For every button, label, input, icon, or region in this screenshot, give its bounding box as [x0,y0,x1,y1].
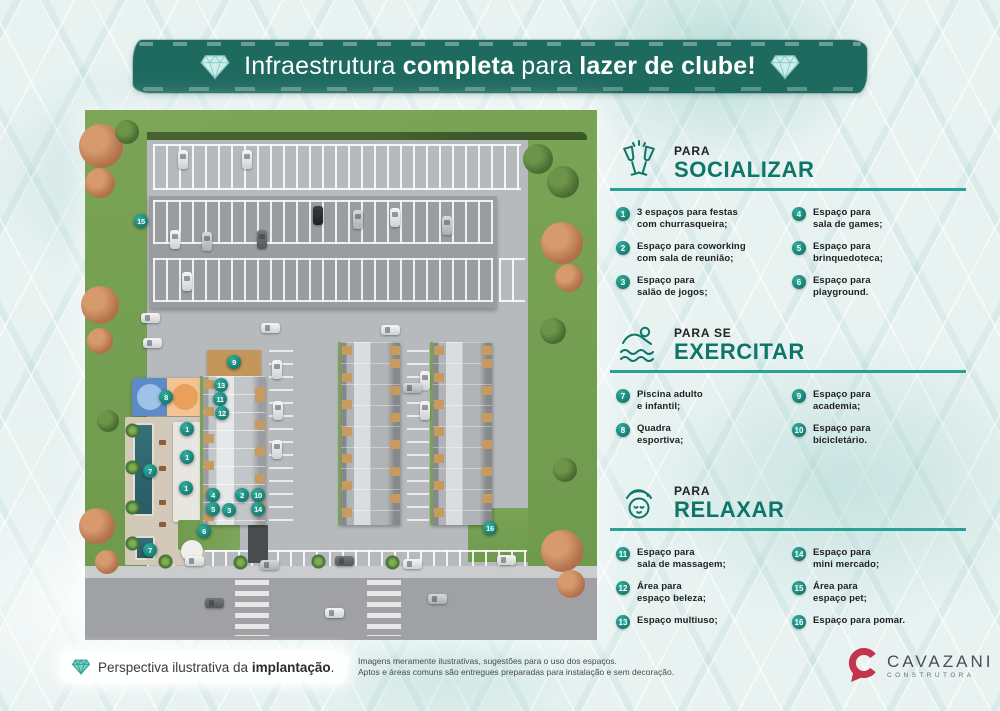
car [273,401,283,420]
item-label: Área paraespaço beleza; [637,581,706,604]
car [260,560,279,570]
tree [97,410,119,432]
car [170,230,180,249]
tree [547,166,579,198]
car [353,210,363,229]
palm-tree [311,554,326,569]
tree [553,458,577,482]
tree [81,286,119,324]
utility-shed [248,525,268,563]
site-plan: 15913111281117745321014616 [85,110,597,640]
item-number-badge: 2 [616,241,630,255]
residential-row [430,342,492,525]
map-marker-15: 15 [134,214,148,228]
tree [541,222,583,264]
section-title: RELAXAR [674,498,785,521]
item-label: Espaço parasala de games; [813,207,883,230]
crosswalk [367,580,401,636]
item-label: 3 espaços para festascom churrasqueira; [637,207,738,230]
item-number-badge: 10 [792,423,806,437]
map-marker-8: 8 [159,390,173,404]
car [272,440,282,459]
item-label: Espaço parasalão de jogos; [637,275,708,298]
car [257,230,267,249]
section-header: PARA SOCIALIZAR [610,136,966,188]
items-column-left: 7Piscina adultoe infantil;8Quadraesporti… [616,389,782,446]
swimmer-icon [616,320,662,368]
section-title: EXERCITAR [674,340,805,363]
item-label: Área paraespaço pet; [813,581,867,604]
item-label: Espaço parabicicletário. [813,423,871,446]
car [325,608,344,618]
car [205,598,224,608]
awning [342,346,352,521]
car [497,555,516,565]
item-label: Espaço parabrinquedoteca; [813,241,883,264]
map-marker-9: 9 [227,355,241,369]
car [185,556,204,566]
deck-furniture [159,466,166,471]
item-number-badge: 12 [616,581,630,595]
item-label: Piscina adultoe infantil; [637,389,703,412]
map-marker-5: 5 [206,502,220,516]
tree [115,120,139,144]
items-column-right: 4Espaço parasala de games;5Espaço parabr… [792,207,962,298]
items-column-right: 9Espaço paraacademia;10Espaço parabicicl… [792,389,962,446]
section-divider [610,370,966,373]
car [143,338,162,348]
item-number-badge: 9 [792,389,806,403]
footer-caption: Perspectiva ilustrativa da implantação. [60,650,348,684]
amenity-item-16: 16Espaço para pomar. [792,615,962,629]
item-number-badge: 8 [616,423,630,437]
diamond-icon [200,54,230,80]
item-label: Quadraesportiva; [637,423,683,446]
amenity-item-3: 3Espaço parasalão de jogos; [616,275,782,298]
map-marker-16: 16 [483,521,497,535]
section-header: PARA SE EXERCITAR [610,318,966,370]
car [428,594,447,604]
footer-caption-text: Perspectiva ilustrativa da implantação. [98,660,334,675]
item-number-badge: 7 [616,389,630,403]
map-marker-11: 11 [213,392,227,406]
logo-name: CAVAZANI [887,653,994,671]
amenity-item-8: 8Quadraesportiva; [616,423,782,446]
section-title: SOCIALIZAR [674,158,814,181]
item-label: Espaço multiuso; [637,615,718,627]
map-marker-10: 10 [251,488,265,502]
map-marker-3: 3 [222,503,236,517]
map-marker-7: 7 [143,464,157,478]
parking-stalls [153,258,493,302]
map-marker-1: 1 [180,450,194,464]
item-label: Espaço para pomar. [813,615,905,627]
section-kicker: PARA [674,144,814,158]
parking-stalls [499,258,525,302]
item-number-badge: 5 [792,241,806,255]
section-relaxar: PARA RELAXAR 11Espaço parasala de massag… [610,476,966,629]
map-marker-2: 2 [235,488,249,502]
car [182,272,192,291]
awning [390,346,400,521]
tree [555,264,583,292]
tree [557,570,585,598]
disclaimer-line: Imagens meramente ilustrativas, sugestõe… [358,656,688,667]
car [141,313,160,323]
disclaimer-line: Aptos e áreas comuns são entregues prepa… [358,667,688,678]
item-number-badge: 15 [792,581,806,595]
item-label: Espaço paraacademia; [813,389,871,412]
diamond-icon [72,659,90,675]
amenity-item-11: 11Espaço parasala de massagem; [616,547,782,570]
logo-subtitle: CONSTRUTORA [887,672,994,679]
tree [85,168,115,198]
palm-tree [125,500,140,515]
map-marker-7: 7 [143,543,157,557]
car [335,556,354,566]
amenity-item-6: 6Espaço paraplayground. [792,275,962,298]
palm-tree [233,555,248,570]
item-number-badge: 13 [616,615,630,629]
amenity-item-12: 12Área paraespaço beleza; [616,581,782,604]
map-marker-13: 13 [214,378,228,392]
car [272,360,282,379]
section-kicker: PARA [674,484,785,498]
crosswalk [235,580,269,636]
deck-furniture [159,500,166,505]
tree [541,530,583,572]
amenity-sections: PARA SOCIALIZAR 13 espaços para festasco… [610,0,966,711]
amenity-item-15: 15Área paraespaço pet; [792,581,962,604]
palm-tree [385,555,400,570]
deck-furniture [159,522,166,527]
car [403,559,422,569]
car [313,206,323,225]
amenity-item-1: 13 espaços para festascom churrasqueira; [616,207,782,230]
item-label: Espaço parasala de massagem; [637,547,726,570]
cavazani-c-mark-icon [848,648,880,684]
car [178,150,188,169]
amenity-item-9: 9Espaço paraacademia; [792,389,962,412]
map-marker-1: 1 [179,481,193,495]
item-label: Espaço paraplayground. [813,275,871,298]
party-pavilions [173,422,203,522]
car [420,401,430,420]
section-exercitar: PARA SE EXERCITAR 7Piscina adultoe infan… [610,318,966,446]
car [242,150,252,169]
map-marker-12: 12 [215,406,229,420]
item-label: Espaço paramini mercado; [813,547,879,570]
cavazani-logo: CAVAZANI CONSTRUTORA [848,648,994,684]
parking-stalls [153,144,521,190]
tree [79,508,115,544]
amenity-item-4: 4Espaço parasala de games; [792,207,962,230]
item-number-badge: 11 [616,547,630,561]
section-socializar: PARA SOCIALIZAR 13 espaços para festasco… [610,136,966,298]
map-marker-14: 14 [251,502,265,516]
item-number-badge: 1 [616,207,630,221]
deck-furniture [159,440,166,445]
section-header: PARA RELAXAR [610,476,966,528]
tree [523,144,553,174]
car [381,325,400,335]
car [403,383,422,393]
amenity-item-5: 5Espaço parabrinquedoteca; [792,241,962,264]
palm-tree [125,423,140,438]
item-number-badge: 4 [792,207,806,221]
amenity-item-7: 7Piscina adultoe infantil; [616,389,782,412]
items-column-right: 14Espaço paramini mercado;15Área paraesp… [792,547,962,629]
palm-tree [125,460,140,475]
items-column-left: 11Espaço parasala de massagem;12Área par… [616,547,782,629]
amenity-item-10: 10Espaço parabicicletário. [792,423,962,446]
section-divider [610,188,966,191]
map-marker-4: 4 [206,488,220,502]
item-label: Espaço para coworkingcom sala de reunião… [637,241,746,264]
car [202,232,212,251]
amenity-item-2: 2Espaço para coworkingcom sala de reuniã… [616,241,782,264]
amenity-item-13: 13Espaço multiuso; [616,615,782,629]
tree [95,550,119,574]
car [390,208,400,227]
map-marker-6: 6 [197,524,211,538]
tree [540,318,566,344]
car [261,323,280,333]
spa-face-icon [616,478,662,526]
residential-row [338,342,400,525]
item-number-badge: 16 [792,615,806,629]
section-kicker: PARA SE [674,326,805,340]
palm-tree [125,536,140,551]
item-number-badge: 6 [792,275,806,289]
item-number-badge: 14 [792,547,806,561]
awning [482,346,492,521]
awning [434,346,444,521]
car [442,216,452,235]
disclaimer: Imagens meramente ilustrativas, sugestõe… [358,656,688,678]
item-number-badge: 3 [616,275,630,289]
right-lawn [526,140,597,572]
items-column-left: 13 espaços para festascom churrasqueira;… [616,207,782,298]
palm-tree [158,554,173,569]
section-divider [610,528,966,531]
champagne-toast-icon [616,138,662,186]
map-marker-1: 1 [180,422,194,436]
tree [87,328,113,354]
amenity-item-14: 14Espaço paramini mercado; [792,547,962,570]
